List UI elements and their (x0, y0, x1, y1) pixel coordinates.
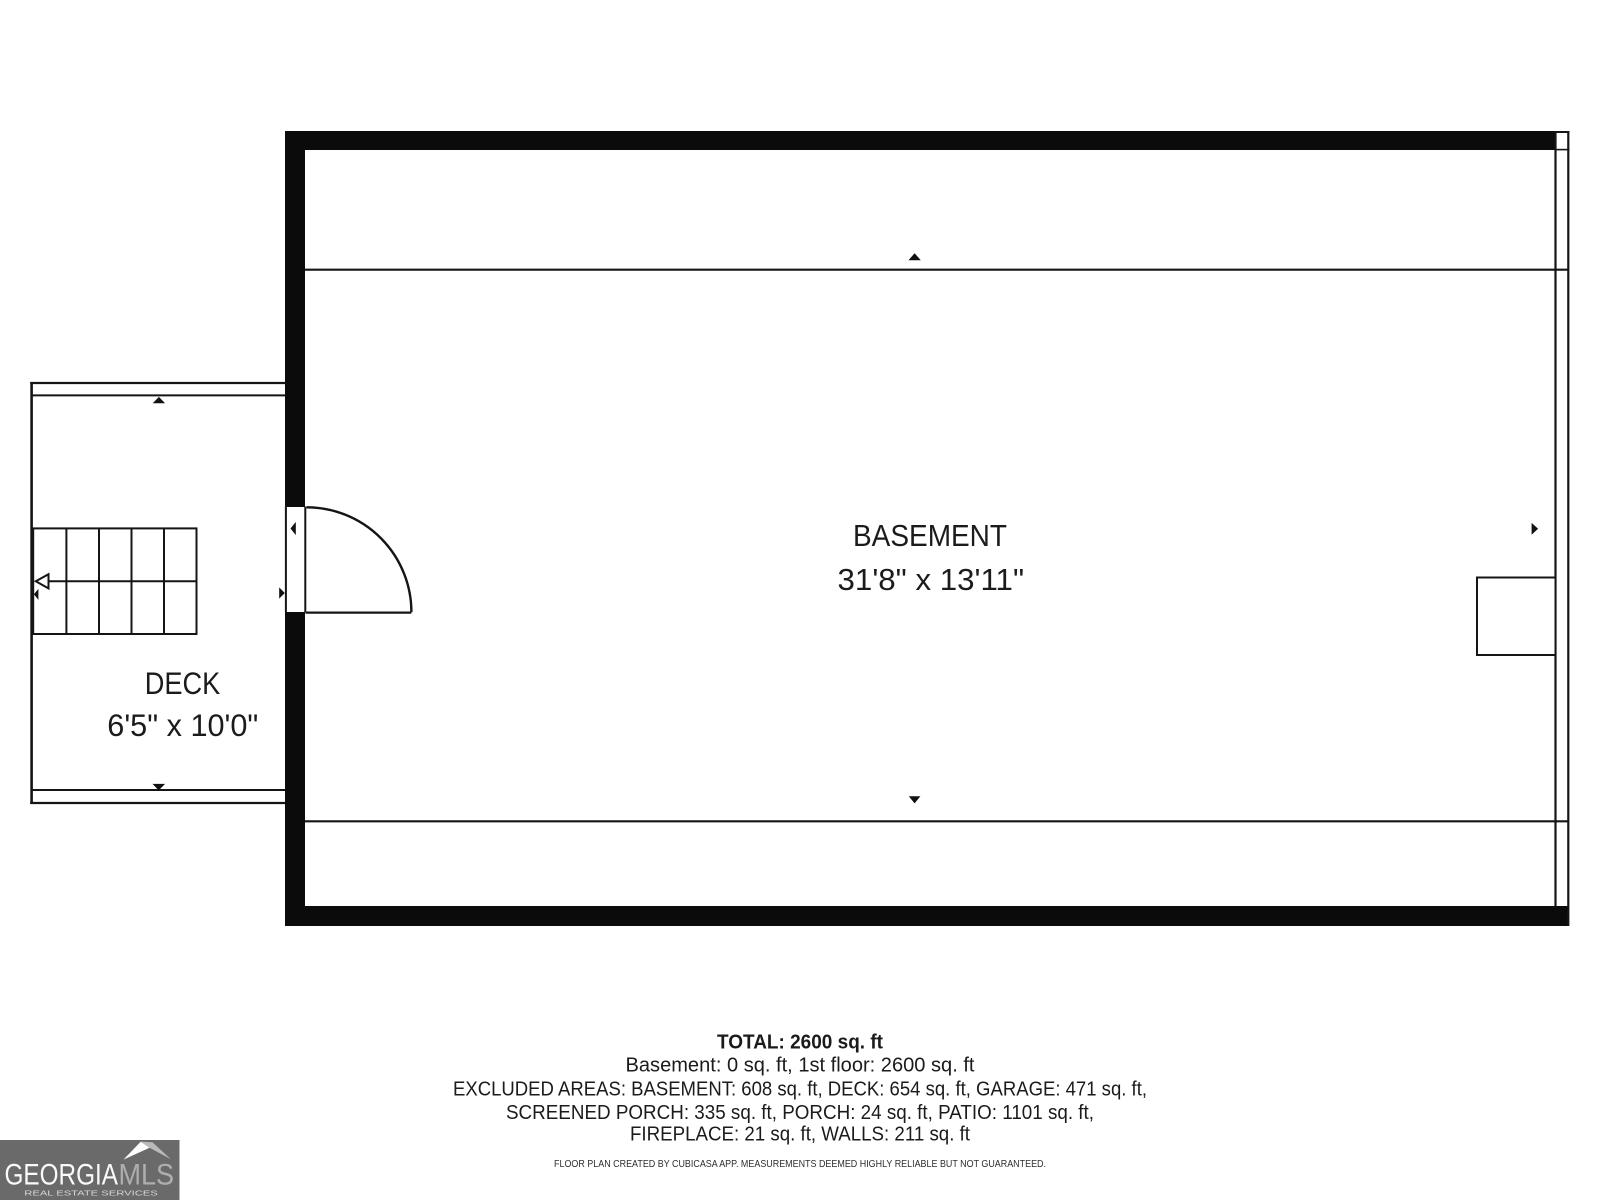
svg-text:31'8" x 13'11": 31'8" x 13'11" (838, 563, 1025, 597)
svg-text:FIREPLACE: 21 sq. ft, WALLS: 2: FIREPLACE: 21 sq. ft, WALLS: 211 sq. ft (630, 1123, 970, 1146)
svg-text:GEORGIA: GEORGIA (5, 1158, 119, 1191)
svg-text:REAL ESTATE SERVICES: REAL ESTATE SERVICES (24, 1189, 158, 1198)
svg-text:SCREENED PORCH: 335 sq. ft, PO: SCREENED PORCH: 335 sq. ft, PORCH: 24 sq… (506, 1101, 1094, 1124)
svg-text:BASEMENT: BASEMENT (853, 519, 1007, 553)
svg-text:MLS: MLS (119, 1158, 175, 1191)
svg-text:EXCLUDED AREAS: BASEMENT: 608: EXCLUDED AREAS: BASEMENT: 608 sq. ft, DE… (453, 1078, 1147, 1101)
svg-text:DECK: DECK (145, 665, 221, 701)
svg-text:FLOOR PLAN CREATED BY CUBICASA: FLOOR PLAN CREATED BY CUBICASA APP. MEAS… (554, 1158, 1046, 1170)
svg-text:6'5" x 10'0": 6'5" x 10'0" (107, 707, 258, 743)
svg-text:Basement: 0 sq. ft, 1st floor:: Basement: 0 sq. ft, 1st floor: 2600 sq. … (626, 1053, 975, 1076)
svg-text:TOTAL: 2600 sq. ft: TOTAL: 2600 sq. ft (717, 1031, 883, 1054)
